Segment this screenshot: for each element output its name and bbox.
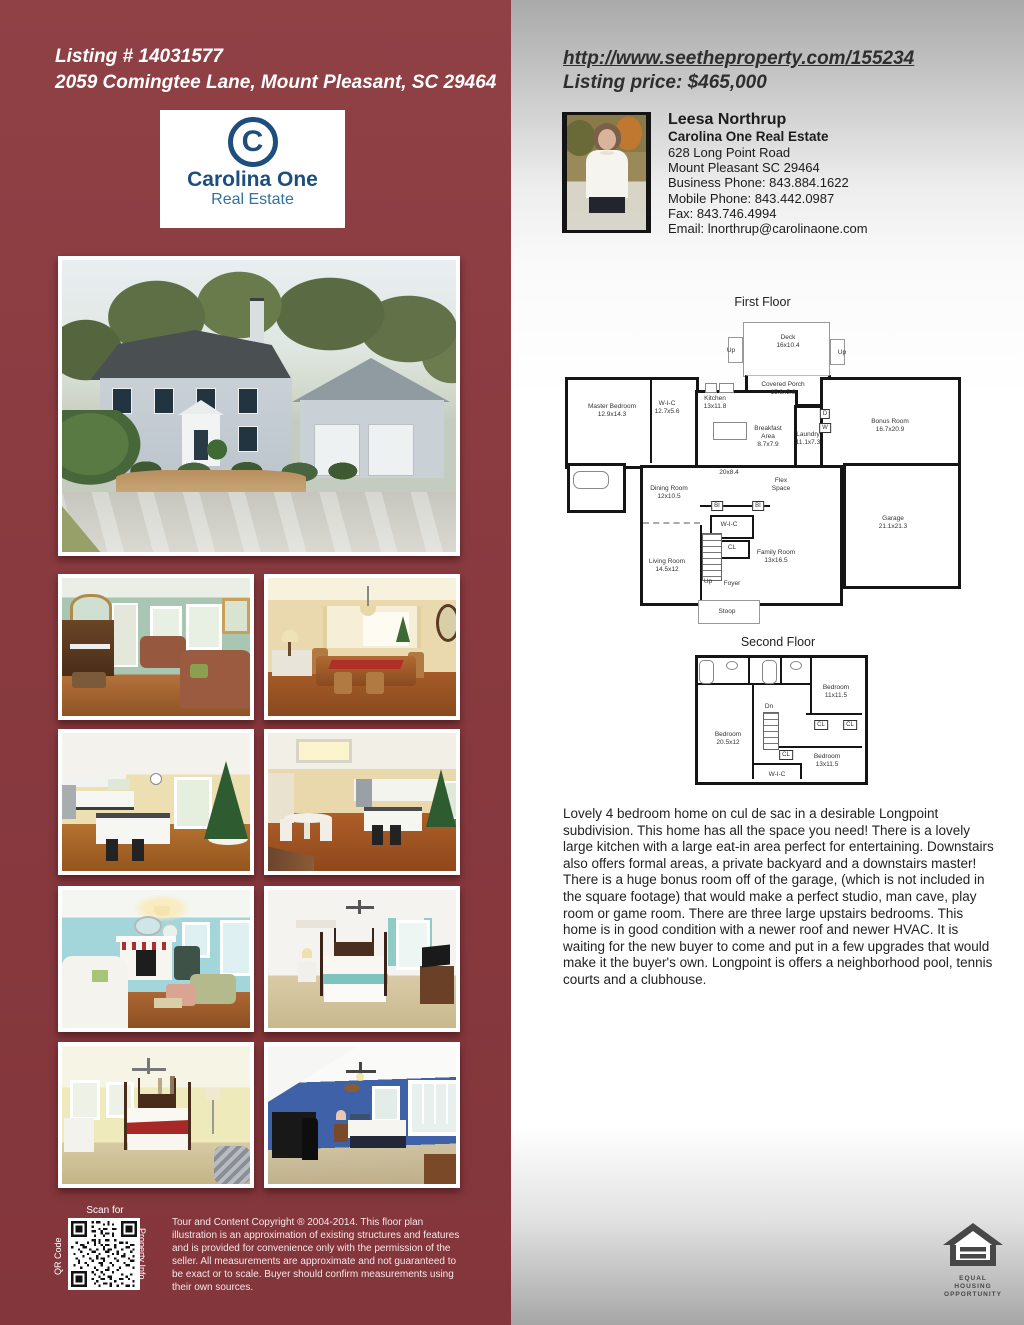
- listing-price: Listing price: $465,000: [563, 72, 767, 94]
- palm: [200, 436, 234, 466]
- room-label: Deck16x10.4: [776, 334, 799, 350]
- agent-name: Leesa Northrup: [668, 111, 868, 129]
- room-label: CL: [843, 720, 857, 730]
- room-label: W-I-C: [721, 521, 738, 529]
- listing-address: 2059 Comingtee Lane, Mount Pleasant, SC …: [55, 70, 496, 96]
- agent-company: Carolina One Real Estate: [668, 129, 868, 145]
- room-label: Bedroom11x11.5: [823, 684, 849, 700]
- room-label: Up: [727, 347, 735, 355]
- agent-mobile-phone: Mobile Phone: 843.442.0987: [668, 191, 868, 206]
- logo-name: Carolina One: [160, 169, 345, 191]
- room-label: Garage21.1x21.3: [879, 515, 908, 531]
- photo-living-room: [58, 574, 254, 720]
- listing-header: Listing # 14031577 2059 Comingtee Lane, …: [55, 44, 496, 96]
- equal-housing-house-icon: [943, 1222, 1003, 1268]
- room-label: Foyer: [724, 580, 741, 588]
- agent-business-phone: Business Phone: 843.884.1622: [668, 175, 868, 190]
- room-label: D: [820, 409, 830, 419]
- qr-scan-for-label: Scan for: [68, 1205, 142, 1216]
- room-label: BI: [711, 501, 723, 511]
- qr-code-label: QR Code: [53, 1220, 63, 1292]
- room-label: BreakfastArea8.7x7.9: [754, 425, 781, 449]
- tour-url-link[interactable]: http://www.seetheproperty.com/155234: [563, 48, 914, 70]
- photo-master-bedroom: [264, 886, 460, 1032]
- room-label: W: [819, 423, 831, 433]
- room-label: BI: [752, 501, 764, 511]
- room-label: CL: [814, 720, 828, 730]
- agent-photo: [562, 112, 651, 233]
- copyright-disclaimer: Tour and Content Copyright ® 2004-2014. …: [172, 1216, 464, 1294]
- room-label: Up: [704, 578, 712, 586]
- room-label: Laundry11.1x7.3: [796, 431, 820, 447]
- equal-housing-line1: EQUAL HOUSING: [940, 1275, 1006, 1291]
- property-description: Lovely 4 bedroom home on cul de sac in a…: [563, 806, 995, 989]
- agent-info: Leesa Northrup Carolina One Real Estate …: [668, 111, 868, 236]
- room-label: Dn: [765, 703, 773, 711]
- left-panel: Listing # 14031577 2059 Comingtee Lane, …: [0, 0, 511, 1325]
- room-label: Family Room13x16.5: [757, 549, 795, 565]
- room-label: W-I-C12.7x5.6: [655, 400, 680, 416]
- room-label: Bedroom13x11.5: [814, 753, 840, 769]
- photo-family-room: [58, 886, 254, 1032]
- room-label: Bedroom20.5x12: [715, 731, 741, 747]
- room-label: Up: [838, 349, 846, 357]
- listing-flyer: Listing # 14031577 2059 Comingtee Lane, …: [0, 0, 1024, 1325]
- carolina-one-logo: C Carolina One Real Estate: [160, 110, 345, 228]
- room-label: Master Bedroom12.9x14.3: [588, 403, 636, 419]
- listing-number: Listing # 14031577: [55, 44, 496, 70]
- second-floor-plan: Second Floor DnBedroom11x11.5CLCLBedroom…: [640, 633, 916, 803]
- room-label: Dining Room12x10.5: [650, 485, 688, 501]
- photo-bedroom-yellow: [58, 1042, 254, 1188]
- agent-blouse: [586, 150, 628, 198]
- agent-address2: Mount Pleasant SC 29464: [668, 160, 868, 175]
- room-label: Stoop: [719, 608, 736, 616]
- agent-address1: 628 Long Point Road: [668, 145, 868, 160]
- room-label: 20x8.4: [719, 469, 739, 477]
- logo-c-icon: C: [228, 117, 278, 167]
- first-floor-plan: First Floor Deck16x10.4UpUpCovered Porch…: [555, 293, 970, 638]
- main-photo: [58, 256, 460, 556]
- agent-fax: Fax: 843.746.4994: [668, 206, 868, 221]
- photo-dining-room: [264, 574, 460, 720]
- photo-kitchen-wide: [264, 729, 460, 875]
- equal-housing-logo: EQUAL HOUSING OPPORTUNITY: [940, 1222, 1006, 1299]
- room-label: Bonus Room16.7x20.9: [871, 418, 909, 434]
- room-label: Covered Porch15.8x5.8: [761, 381, 804, 397]
- agent-face: [598, 129, 616, 150]
- room-label: CL: [728, 544, 736, 552]
- room-label: CL: [779, 750, 793, 760]
- equal-housing-line2: OPPORTUNITY: [940, 1291, 1006, 1299]
- room-label: FlexSpace: [772, 477, 790, 493]
- photo-bedroom-blue: [264, 1042, 460, 1188]
- qr-code: [68, 1218, 140, 1290]
- room-label: Kitchen13x11.8: [704, 395, 727, 411]
- agent-email: Email: lnorthrup@carolinaone.com: [668, 221, 868, 236]
- room-label: Living Room14.5x12: [649, 558, 685, 574]
- logo-division: Real Estate: [160, 191, 345, 209]
- room-label: W-I-C: [769, 771, 786, 779]
- photo-kitchen: [58, 729, 254, 875]
